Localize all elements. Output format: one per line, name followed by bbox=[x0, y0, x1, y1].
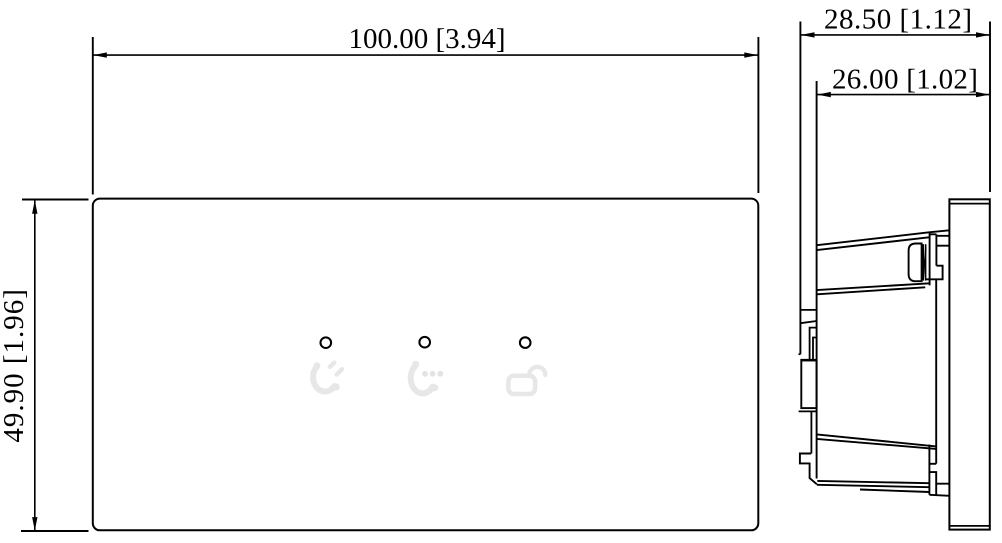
svg-text:49.90 [1.96]: 49.90 [1.96] bbox=[0, 288, 30, 443]
svg-text:100.00 [3.94]: 100.00 [3.94] bbox=[349, 23, 506, 55]
svg-text:26.00 [1.02]: 26.00 [1.02] bbox=[832, 64, 978, 96]
svg-text:28.50 [1.12]: 28.50 [1.12] bbox=[824, 4, 973, 36]
